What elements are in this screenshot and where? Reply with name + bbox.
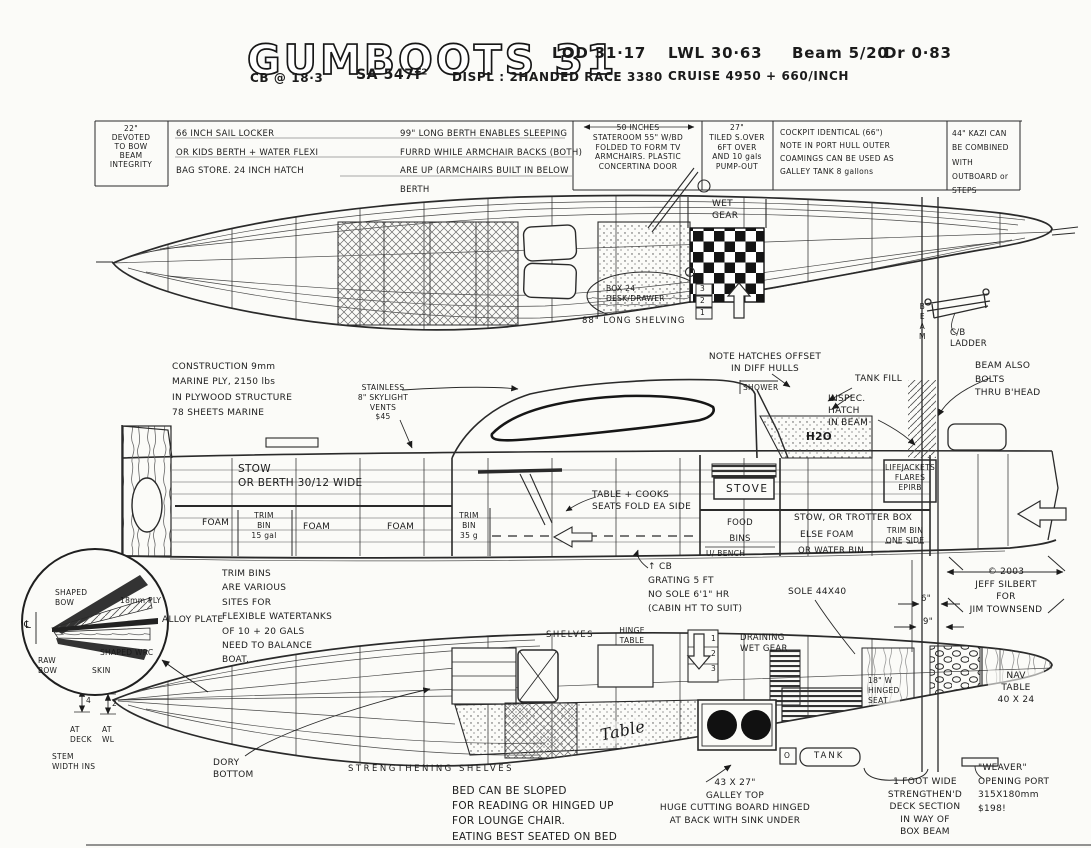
at-deck-label: AT DECK bbox=[70, 725, 92, 745]
cane-seat bbox=[505, 703, 577, 758]
food-bins-label: FOOD BINS bbox=[718, 515, 762, 547]
shaped-wrc-label: SHAPED WRC bbox=[100, 648, 153, 658]
table-cell-shower: 27" TILED S.OVER 6FT OVER AND 10 gals PU… bbox=[704, 123, 770, 172]
ply-label: 18mm PLY bbox=[120, 596, 161, 606]
weaver-note: "WEAVER" OPENING PORT 315X180mm $198! bbox=[978, 762, 1049, 816]
shelving-label: 88" LONG SHELVING bbox=[582, 316, 685, 327]
inspec-note: INSPEC. HATCH IN BEAM bbox=[828, 393, 868, 429]
or-water-label: OR WATER BIN bbox=[798, 546, 864, 557]
spec-cruise: CRUISE 4950 + 660/INCH bbox=[668, 68, 849, 84]
dory-bottom-note: DORY BOTTOM bbox=[213, 757, 254, 781]
steps-down-label: 1 2 3 bbox=[711, 631, 716, 676]
dim-4-label: 4 bbox=[86, 696, 91, 706]
dim-2-label: 2 bbox=[112, 699, 117, 709]
spec-lwl: LWL 30·63 bbox=[668, 43, 762, 63]
cabin-window bbox=[492, 396, 714, 440]
dim-9: 9" bbox=[923, 617, 933, 628]
galley-note: 43 X 27" GALLEY TOP HUGE CUTTING BOARD H… bbox=[630, 777, 840, 827]
draining-label: DRAINING WET GEAR bbox=[740, 633, 788, 656]
table-cell-bow: 22" DEVOTED TO BOW BEAM INTEGRITY bbox=[97, 124, 165, 169]
pillow-2 bbox=[523, 263, 576, 299]
galley-grill bbox=[782, 688, 862, 746]
beam-label: BEAM bbox=[917, 302, 927, 342]
trim-bin-side-label: TRIM BIN ONE SIDE bbox=[882, 526, 928, 546]
stove-label: STOVE bbox=[726, 482, 768, 496]
spec-draft: Dr 0·83 bbox=[884, 43, 952, 63]
bed-note: BED CAN BE SLOPED FOR READING OR HINGED … bbox=[452, 784, 617, 845]
vents-note: STAINLESS 8" SKYLIGHT VENTS $45 bbox=[348, 383, 418, 422]
table-cell-sail-locker: 66 INCH SAIL LOCKER OR KIDS BERTH + WATE… bbox=[176, 125, 431, 181]
raw-bow-label: RAW BOW bbox=[38, 656, 57, 676]
strengthening-label: STRENGTHENING SHELVES bbox=[348, 764, 514, 775]
sole-leader bbox=[815, 600, 855, 654]
table-cell-cockpit: COCKPIT IDENTICAL (66") NOTE IN PORT HUL… bbox=[780, 126, 944, 179]
spec-sa: SA 547f² bbox=[356, 66, 428, 85]
hatches-note: NOTE HATCHES OFFSET IN DIFF HULLS bbox=[700, 351, 830, 375]
outline-arrow-left-right bbox=[1018, 501, 1066, 527]
shelves-label: SHELVES bbox=[546, 630, 594, 641]
spec-displ: DISPL : 2HANDED RACE 3380 bbox=[452, 69, 663, 85]
foam-label-1: FOAM bbox=[202, 517, 229, 529]
steps-up-label: 3 2 1 bbox=[700, 283, 705, 318]
dim-6: 6" bbox=[921, 594, 931, 605]
table-cell-stateroom: 50 INCHES STATEROOM 55" W/BD FOLDED TO F… bbox=[576, 123, 700, 172]
tank-fill-note: TANK FILL bbox=[855, 373, 902, 385]
table-cell-berth: 99" LONG BERTH ENABLES SLEEPING FURRD WH… bbox=[400, 125, 585, 200]
at-wl-label: AT WL bbox=[102, 725, 114, 745]
lifejackets-label: LIFEJACKETS FLARES EPIRB bbox=[884, 463, 936, 492]
cockpit bbox=[757, 380, 1006, 458]
trim-bin-35-label: TRIM BIN 35 g bbox=[448, 511, 490, 540]
sole-note: SOLE 44X40 bbox=[788, 586, 846, 598]
stow-trotter-label: STOW, OR TROTTER BOX bbox=[794, 512, 912, 524]
coach-roof bbox=[452, 380, 757, 458]
hinge-table-label: HINGE TABLE bbox=[608, 626, 656, 646]
top-hull-furniture bbox=[338, 222, 703, 325]
copyright-note: © 2003 JEFF SILBERT FOR JIM TOWNSEND bbox=[958, 566, 1054, 616]
top-hull-planking bbox=[113, 201, 1052, 318]
boat-plan-sheet: GUMBOOTS 31 bbox=[0, 0, 1091, 848]
cb-grating-note: ↑ CB GRATING 5 FT NO SOLE 6'1" HR (CABIN… bbox=[648, 561, 742, 617]
deck-section-note: 1 FOOT WIDE STRENGTHEN'D DECK SECTION IN… bbox=[880, 776, 970, 839]
bow-block bbox=[122, 425, 172, 558]
wet-gear-label: WET GEAR bbox=[712, 198, 738, 222]
box24-label: BOX 24 DESK/DRAWER bbox=[606, 284, 665, 304]
spec-lod: LOD 31·17 bbox=[552, 43, 646, 63]
stern-transom bbox=[1048, 451, 1058, 540]
o-label: O bbox=[784, 751, 790, 761]
spec-cb: CB @ 18·3 bbox=[250, 70, 323, 86]
shaped-bow-label: SHAPED BOW bbox=[55, 588, 87, 608]
trim-bin-15-label: TRIM BIN 15 gal bbox=[240, 511, 288, 540]
construction-note: CONSTRUCTION 9mm MARINE PLY, 2150 lbs IN… bbox=[172, 360, 292, 421]
bow-porthole bbox=[132, 478, 162, 532]
table-cell-kazi: 44" KAZI CAN BE COMBINED WITH OUTBOARD o… bbox=[952, 127, 1020, 198]
stow-berth-label: STOW OR BERTH 30/12 WIDE bbox=[238, 462, 362, 490]
table-cooks-note: TABLE + COOKS SEATS FOLD EA SIDE bbox=[592, 489, 691, 513]
stem-width-label: STEM WIDTH INS bbox=[52, 752, 95, 772]
top-plan-view bbox=[96, 168, 1078, 340]
folded-table bbox=[478, 470, 596, 525]
alloy-plate-label: ALLOY PLATE bbox=[162, 614, 223, 626]
u-bench-label: U/ BENCH bbox=[706, 549, 745, 559]
tank-label: TANK bbox=[814, 751, 844, 762]
stove-griddle bbox=[712, 464, 776, 477]
shower-label: SHOWER bbox=[743, 383, 778, 393]
foredeck-hatch bbox=[266, 438, 318, 447]
skin-label: SKIN bbox=[92, 666, 111, 676]
spec-beam: Beam 5/20 bbox=[792, 43, 889, 63]
h2o-label: H2O bbox=[806, 430, 832, 444]
foam-label-3: FOAM bbox=[387, 521, 414, 533]
nav-table-label: NAV TABLE 40 X 24 bbox=[988, 670, 1044, 706]
foam-label-2: FOAM bbox=[303, 521, 330, 533]
berth-crosshatch bbox=[338, 222, 518, 325]
stove-unit bbox=[698, 700, 776, 750]
outline-arrow-left-mid bbox=[554, 527, 592, 547]
pillow-1 bbox=[523, 225, 577, 262]
else-foam-label: ELSE FOAM bbox=[800, 529, 854, 541]
hinge-table-top bbox=[598, 645, 653, 687]
cb-ladder-label: C/B LADDER bbox=[950, 328, 987, 351]
centerline-symbol: ℄ bbox=[24, 618, 31, 632]
beam-bolts-note: BEAM ALSO BOLTS THRU B'HEAD bbox=[975, 360, 1040, 401]
trim-bins-note: TRIM BINS ARE VARIOUS SITES FOR FLEXIBLE… bbox=[222, 567, 332, 668]
hinged-seat-label: 18" W HINGED SEAT bbox=[868, 676, 900, 705]
